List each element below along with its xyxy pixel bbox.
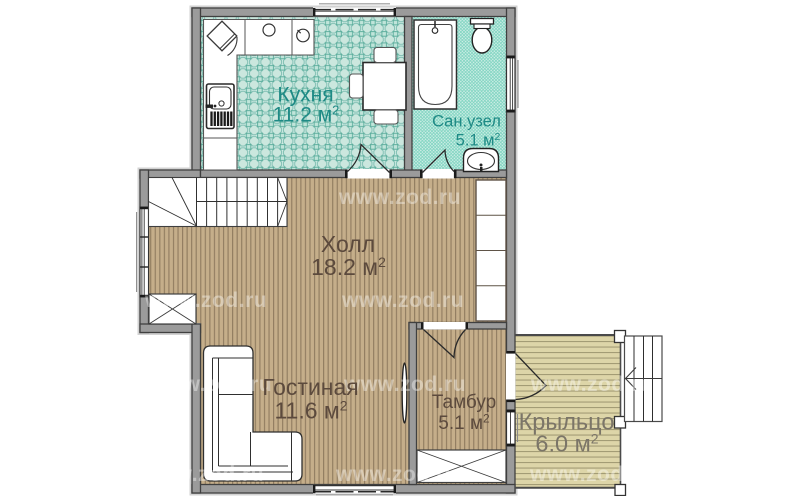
svg-text:www.zod.ru: www.zod.ru — [529, 463, 652, 486]
svg-text:11.2 м2: 11.2 м2 — [273, 103, 340, 127]
svg-text:www.zod.ru: www.zod.ru — [141, 463, 264, 486]
svg-text:www.zod.ru: www.zod.ru — [530, 373, 653, 396]
svg-text:18.2 м2: 18.2 м2 — [311, 254, 386, 280]
svg-text:5.1 м2: 5.1 м2 — [456, 131, 501, 150]
svg-text:www.zod.ru: www.zod.ru — [341, 289, 464, 312]
svg-text:www.zod.ru: www.zod.ru — [335, 463, 458, 486]
svg-text:Сан.узел: Сан.узел — [432, 113, 501, 131]
svg-text:Гостиная: Гостиная — [262, 374, 359, 400]
svg-text:11.6 м2: 11.6 м2 — [274, 398, 347, 424]
svg-text:6.0 м2: 6.0 м2 — [535, 431, 598, 457]
svg-text:5.1 м2: 5.1 м2 — [438, 412, 490, 435]
svg-text:www.zod.ru: www.zod.ru — [144, 289, 267, 312]
svg-text:www.zod.ru: www.zod.ru — [338, 186, 461, 209]
svg-text:Тамбур: Тамбур — [432, 392, 497, 413]
svg-text:www.zod.ru: www.zod.ru — [149, 373, 272, 396]
